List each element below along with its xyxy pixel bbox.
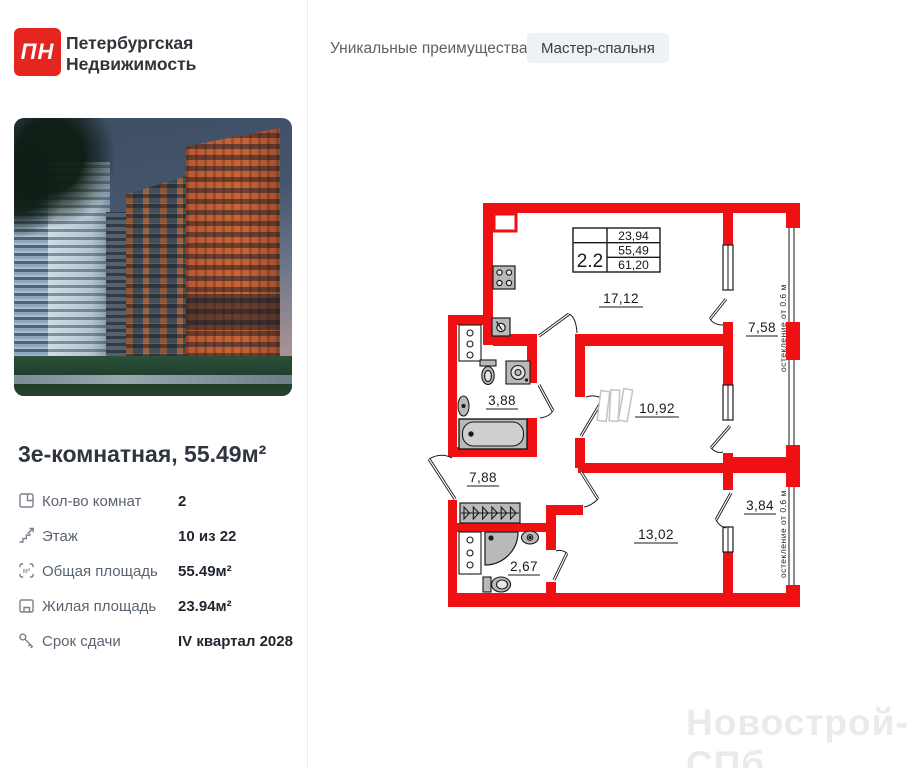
bathtub-icon — [459, 419, 527, 449]
shower-cabinet-icon — [459, 532, 481, 574]
room-area-balcony-top: 7,58 — [748, 320, 776, 335]
bathroom-cabinet-icon — [459, 325, 481, 361]
room-area-hallway: 7,88 — [469, 470, 497, 485]
room-area-balcony-bottom: 3,84 — [746, 498, 774, 513]
bathroom-sink-icon — [458, 396, 469, 416]
room-area-bedroom-2: 13,02 — [638, 527, 674, 542]
glazing-note-bottom: остекление от 0.6 м — [778, 490, 788, 578]
room-area-bathroom: 3,88 — [488, 393, 516, 408]
kitchen-sink-icon — [492, 318, 510, 336]
floor-plan: 2.2 23,94 55,49 61,20 17,12 7,58 10,92 3… — [0, 0, 922, 768]
bedroom-wardrobe-icon — [597, 389, 633, 422]
unit-type-label: 2.2 — [577, 251, 603, 272]
washing-machine-icon — [506, 361, 530, 384]
hallway-wardrobe-icon — [460, 503, 520, 523]
room-area-bedroom-1: 10,92 — [639, 401, 675, 416]
full-area-value: 61,20 — [618, 258, 649, 272]
balcony-glazing-lines — [789, 228, 794, 585]
room-area-shower-room: 2,67 — [510, 559, 538, 574]
kitchen-stove-icon — [493, 266, 515, 289]
toilet-icon — [480, 360, 496, 385]
watermark: Новострой-СПб — [686, 702, 922, 768]
room-area-kitchen-living: 17,12 — [603, 291, 639, 306]
shower-toilet-icon — [483, 577, 511, 592]
living-area-value: 23,94 — [618, 229, 649, 243]
glazing-note-top: остекление от 0.6 м — [778, 284, 788, 372]
shower-sink-icon — [522, 531, 539, 544]
total-area-value: 55,49 — [618, 244, 649, 258]
plan-column-marker — [494, 214, 516, 231]
